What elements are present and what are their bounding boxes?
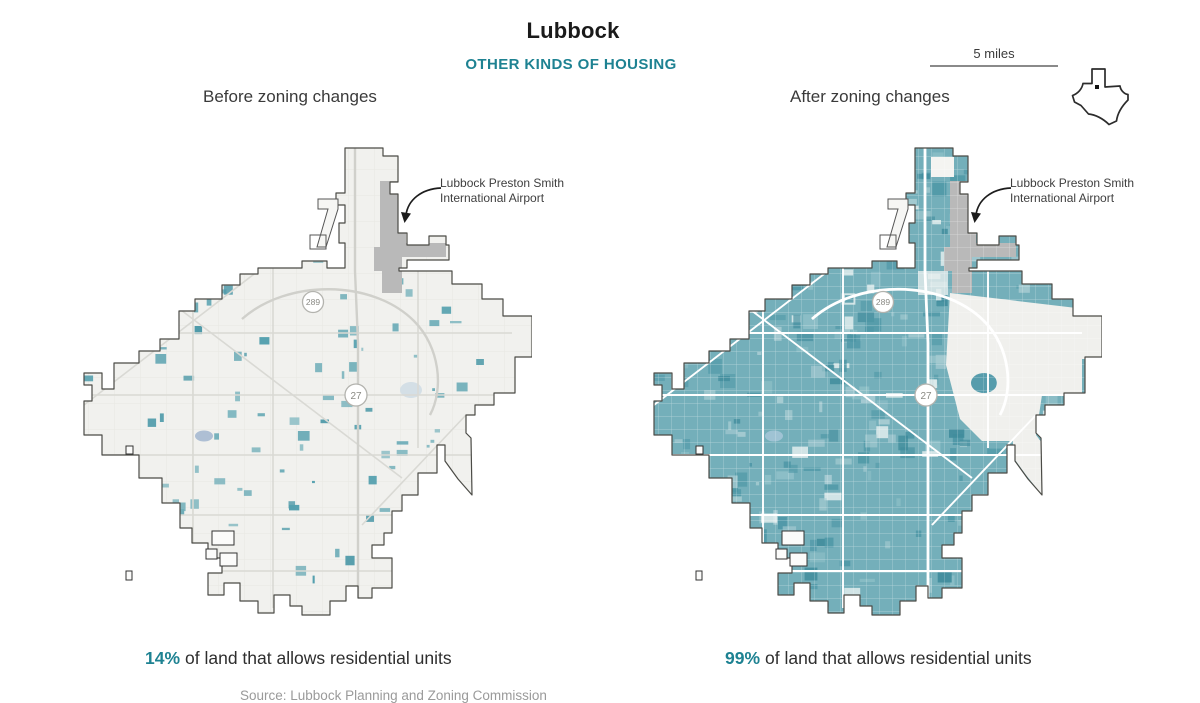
annotation-arrow-icon (967, 182, 1013, 233)
scale-bar-label: 5 miles (930, 46, 1058, 61)
lake (195, 431, 213, 442)
lubbock-location-dot (1095, 85, 1099, 89)
before-panel-label: Before zoning changes (203, 87, 377, 107)
before-stat-value: 14% (145, 648, 180, 668)
airport-annotation-after: Lubbock Preston Smith International Airp… (1010, 176, 1160, 205)
after-stat-caption: 99%of land that allows residential units (725, 648, 1032, 669)
source-credit: Source: Lubbock Planning and Zoning Comm… (240, 688, 547, 703)
annotation-line1: Lubbock Preston Smith (440, 176, 564, 190)
texas-outline (1073, 69, 1129, 125)
highway-shield-289: 289 (873, 292, 894, 313)
svg-text:289: 289 (876, 297, 890, 307)
after-stat-text: of land that allows residential units (765, 648, 1032, 668)
svg-text:289: 289 (306, 297, 320, 307)
before-stat-caption: 14%of land that allows residential units (145, 648, 452, 669)
highway-shield-289: 289 (303, 292, 324, 313)
after-map: 289 27 (632, 143, 1102, 625)
annotation-line1: Lubbock Preston Smith (1010, 176, 1134, 190)
highway-shield-27: 27 (345, 384, 367, 406)
annotation-arrow-icon (397, 182, 443, 233)
page-title: Lubbock (0, 18, 1146, 44)
airport-annotation-before: Lubbock Preston Smith International Airp… (440, 176, 590, 205)
texas-locator-icon (1070, 66, 1134, 133)
annotation-line2: International Airport (1010, 191, 1114, 205)
scale-bar-line (930, 65, 1058, 67)
sub-boundary (317, 199, 338, 247)
scale-bar: 5 miles (930, 46, 1058, 67)
before-stat-text: of land that allows residential units (185, 648, 452, 668)
before-map-svg: 289 27 (62, 143, 532, 625)
before-map: 289 27 (62, 143, 532, 625)
annotation-line2: International Airport (440, 191, 544, 205)
after-stat-value: 99% (725, 648, 760, 668)
svg-text:27: 27 (350, 391, 362, 402)
after-panel-label: After zoning changes (790, 87, 950, 107)
after-map-svg: 289 27 (632, 143, 1102, 625)
highway-shield-27: 27 (915, 384, 937, 406)
svg-text:27: 27 (920, 391, 932, 402)
sub-boundary (887, 199, 908, 247)
